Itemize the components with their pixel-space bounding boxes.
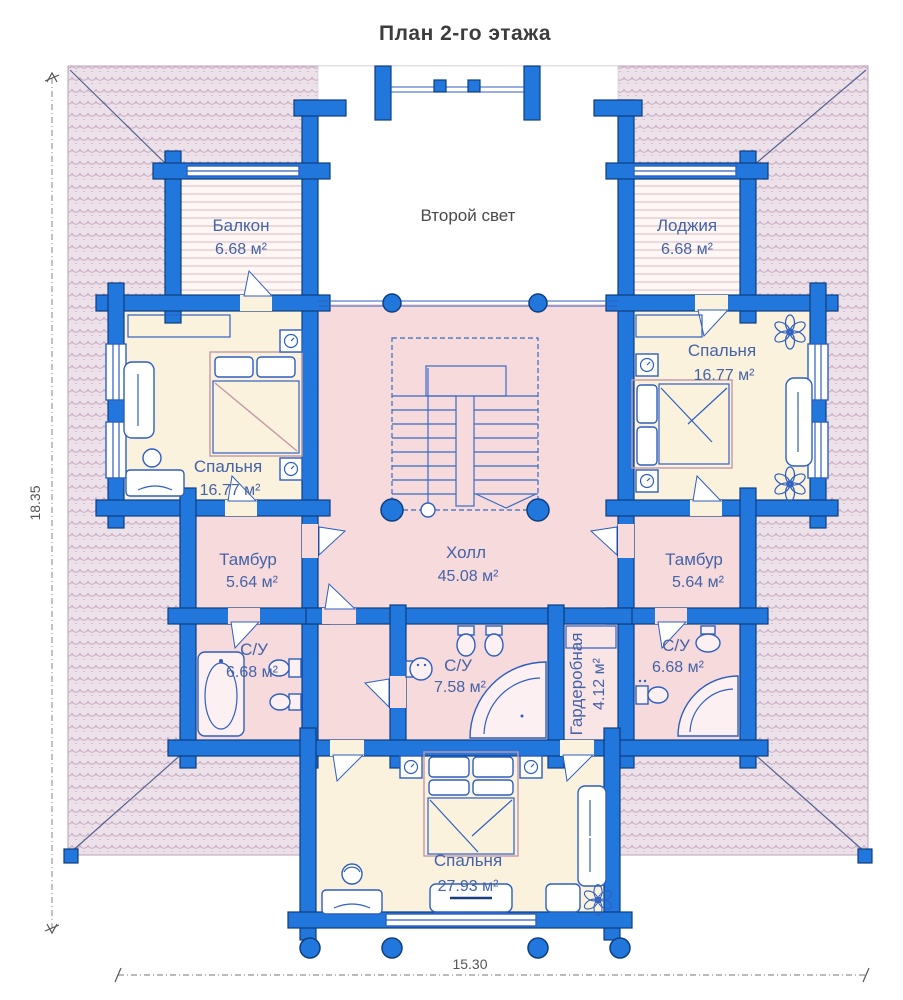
- label-tambour-right-name: Тамбур: [665, 550, 723, 569]
- porch-column-1: [300, 938, 320, 958]
- dimension-height: 18.35: [27, 73, 59, 933]
- window-loggia: [634, 166, 736, 176]
- sofa-bottom: [578, 786, 606, 886]
- window-bedroom-left-1: [106, 344, 126, 400]
- desk-left: [126, 470, 184, 496]
- label-su-left-area: 6.68 м²: [226, 664, 279, 681]
- label-hall-name: Холл: [446, 543, 486, 562]
- floor-plan-page: План 2-го этажа Балкон 6.68 м² Второй св…: [0, 0, 903, 1000]
- label-bedroom-bottom-area: 27.93 м²: [438, 878, 499, 895]
- label-tambour-right-area: 5.64 м²: [672, 574, 725, 591]
- label-bedroom-bottom-name: Спальня: [434, 851, 502, 870]
- desk-bottom: [322, 890, 382, 914]
- armchair-left: [124, 362, 154, 438]
- room-hall: [318, 304, 618, 608]
- label-hall-area: 45.08 м²: [438, 568, 499, 585]
- column-stair-left: [381, 499, 403, 521]
- column-top-left: [383, 294, 401, 312]
- dimension-width-value: 15.30: [452, 956, 487, 972]
- second-light-void: [318, 66, 618, 306]
- label-bedroom-right-area: 16.77 м²: [694, 367, 755, 384]
- window-bedroom-left-2: [106, 422, 126, 478]
- label-bedroom-right-name: Спальня: [688, 341, 756, 360]
- stair-newel: [421, 503, 435, 517]
- window-bedroom-bottom: [386, 914, 536, 926]
- label-bedroom-left-name: Спальня: [194, 457, 262, 476]
- label-su-right-name: С/У: [662, 636, 690, 655]
- label-su-center-area: 7.58 м²: [434, 679, 487, 696]
- armchair-bottom: [546, 884, 580, 912]
- porch-column-2: [382, 938, 402, 958]
- floor-plan-canvas: План 2-го этажа Балкон 6.68 м² Второй св…: [0, 0, 903, 1000]
- room-loggia: [634, 179, 740, 295]
- dimension-height-value: 18.35: [27, 485, 43, 520]
- page-title: План 2-го этажа: [379, 22, 551, 45]
- roof-post-right: [858, 849, 872, 863]
- label-second-light: Второй свет: [421, 206, 516, 225]
- label-bedroom-left-area: 16.77 м²: [200, 482, 261, 499]
- bidet-center: [485, 626, 503, 656]
- window-balcony: [187, 166, 299, 176]
- label-balcony-area: 6.68 м²: [215, 241, 268, 258]
- label-su-center-name: С/У: [444, 656, 472, 675]
- room-balcony: [181, 179, 302, 295]
- toilet-center: [457, 626, 475, 656]
- column-top-right: [529, 294, 547, 312]
- sink-center: [406, 658, 432, 680]
- room-bedroom-right: [634, 311, 810, 500]
- dimension-width: 15.30: [115, 956, 869, 982]
- bidet-left: [270, 694, 301, 710]
- seat-right: [786, 378, 812, 466]
- label-balcony-name: Балкон: [212, 216, 269, 235]
- porch-column-3: [528, 938, 548, 958]
- label-wardrobe-name: Гардеробная: [567, 633, 586, 736]
- label-loggia-area: 6.68 м²: [661, 241, 714, 258]
- label-loggia-name: Лоджия: [657, 216, 717, 235]
- label-tambour-left-name: Тамбур: [219, 550, 277, 569]
- label-su-right-area: 6.68 м²: [652, 659, 705, 676]
- chair-left: [143, 449, 161, 467]
- porch-columns: [300, 938, 630, 958]
- column-stair-right: [527, 499, 549, 521]
- roof-post-left: [64, 849, 78, 863]
- label-wardrobe-area: 4.12 м²: [591, 657, 608, 710]
- label-tambour-left-area: 5.64 м²: [226, 574, 279, 591]
- porch-column-4: [610, 938, 630, 958]
- label-su-left-name: С/У: [240, 640, 268, 659]
